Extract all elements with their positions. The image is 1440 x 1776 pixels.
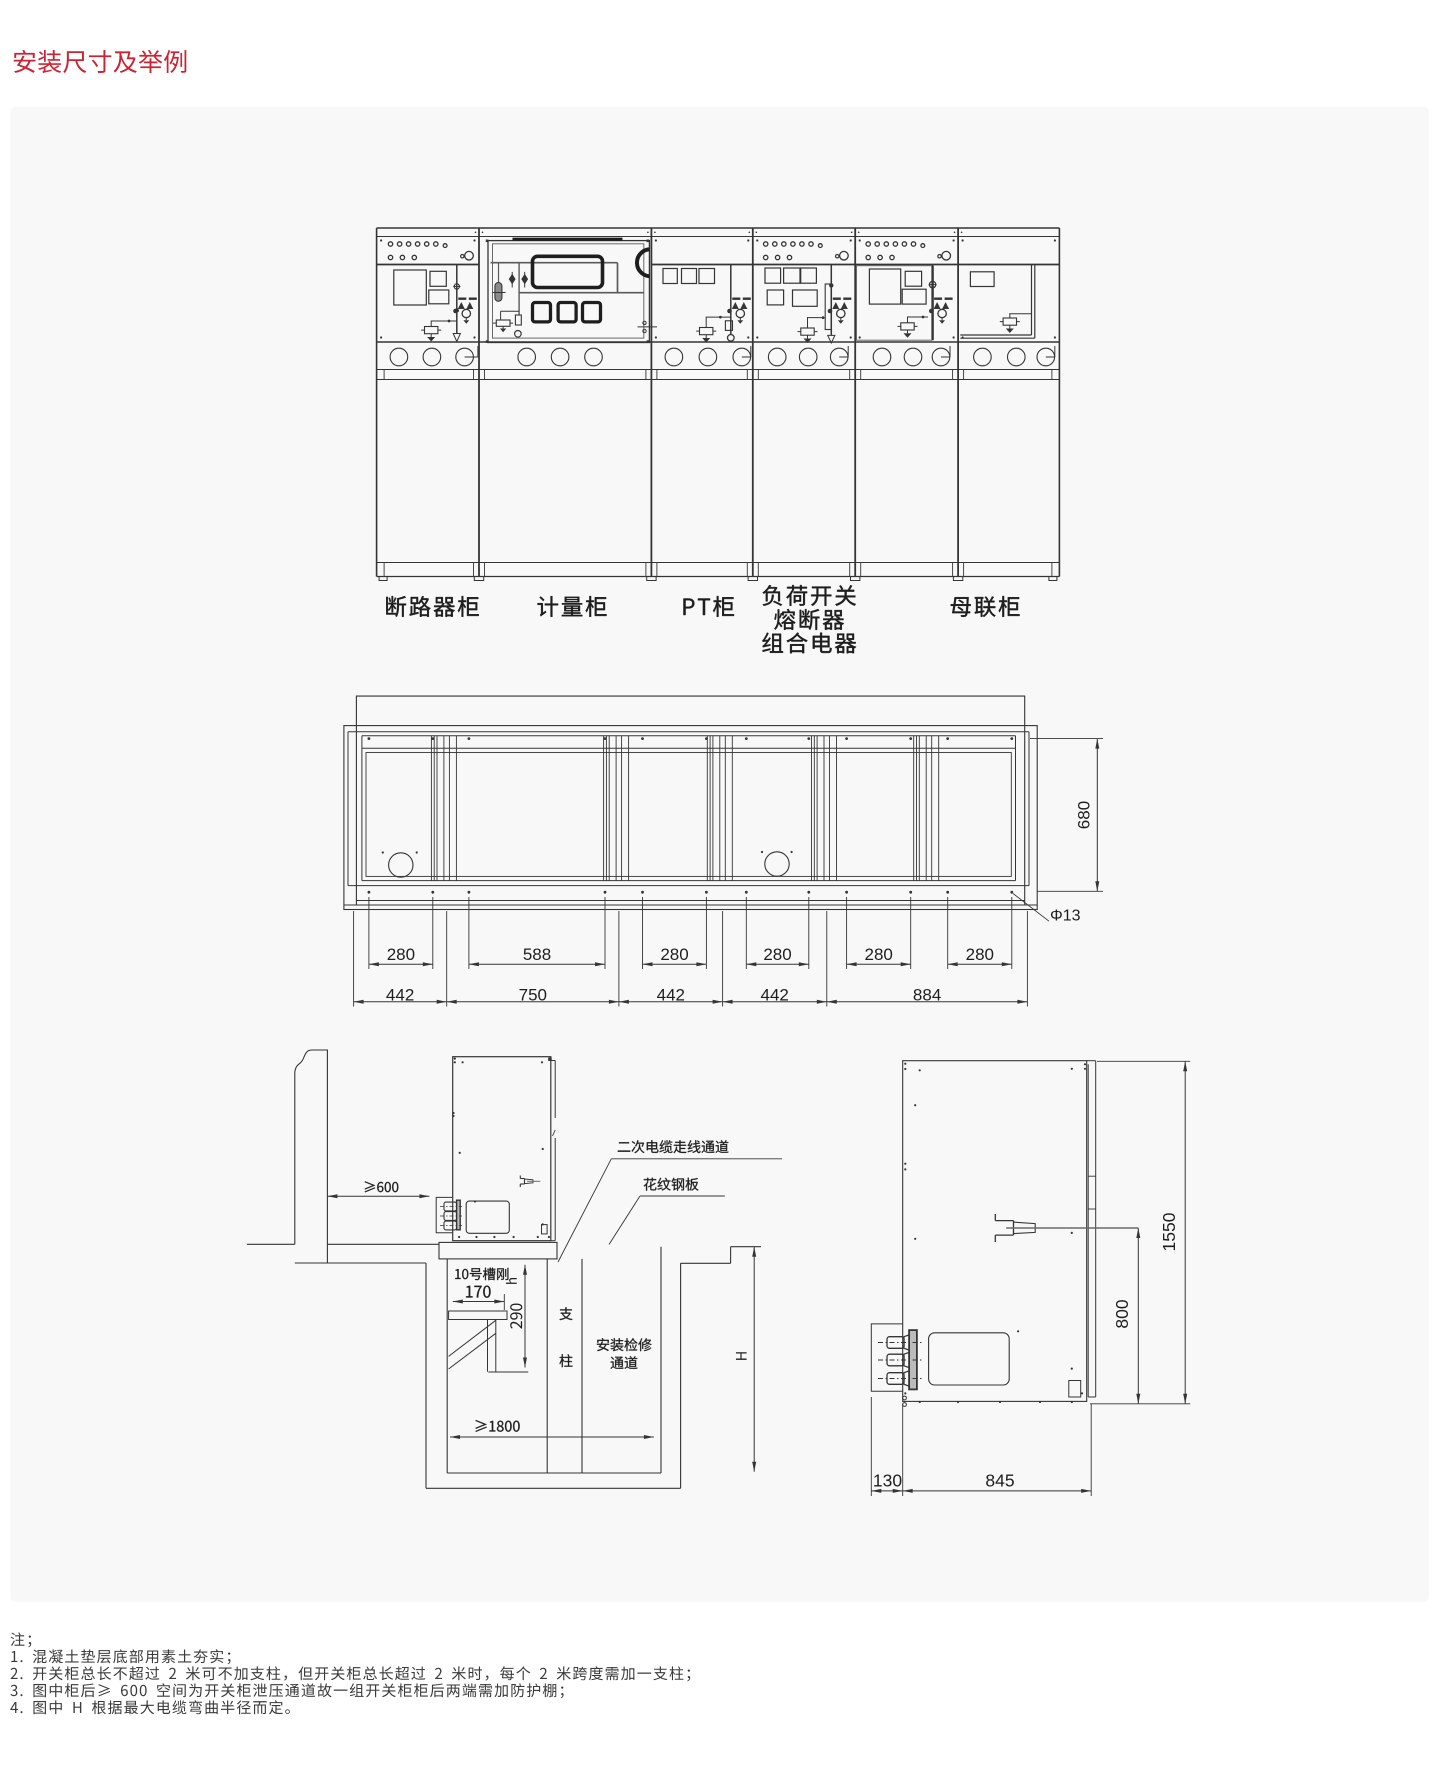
svg-text:Φ13: Φ13 [1050,908,1081,925]
svg-text:280: 280 [660,945,688,964]
svg-text:442: 442 [657,985,685,1004]
svg-text:845: 845 [985,1471,1014,1491]
svg-text:750: 750 [519,985,547,1004]
svg-text:588: 588 [523,945,551,964]
svg-text:280: 280 [865,945,893,964]
svg-text:280: 280 [387,945,415,964]
svg-text:680: 680 [1075,801,1094,829]
svg-text:800: 800 [1112,1299,1132,1328]
svg-text:442: 442 [761,985,789,1004]
svg-text:280: 280 [763,945,791,964]
svg-text:442: 442 [386,985,414,1004]
svg-text:1550: 1550 [1159,1212,1179,1251]
svg-text:280: 280 [966,945,994,964]
svg-text:884: 884 [913,985,941,1004]
svg-text:130: 130 [873,1471,902,1491]
